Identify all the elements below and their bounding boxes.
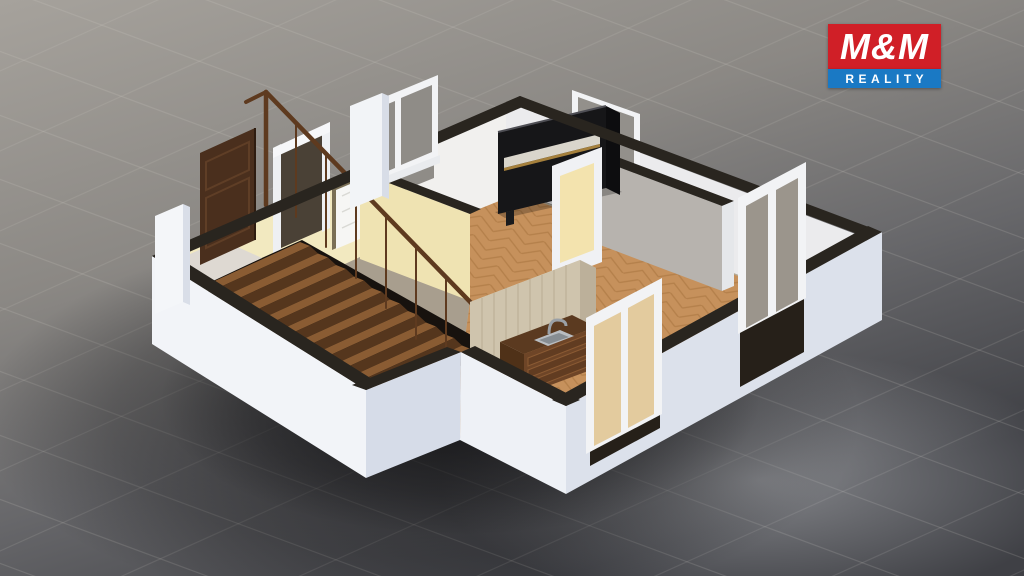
door-frame-post-left bbox=[155, 204, 190, 314]
interior-door-frame bbox=[552, 147, 602, 281]
brand-logo: M&M REALITY bbox=[828, 24, 941, 88]
brand-logo-top: M&M bbox=[828, 24, 941, 69]
screenshot-root: M&M REALITY bbox=[0, 0, 1024, 576]
brand-logo-bottom: REALITY bbox=[828, 69, 941, 88]
door-frame-post-center bbox=[350, 93, 389, 209]
